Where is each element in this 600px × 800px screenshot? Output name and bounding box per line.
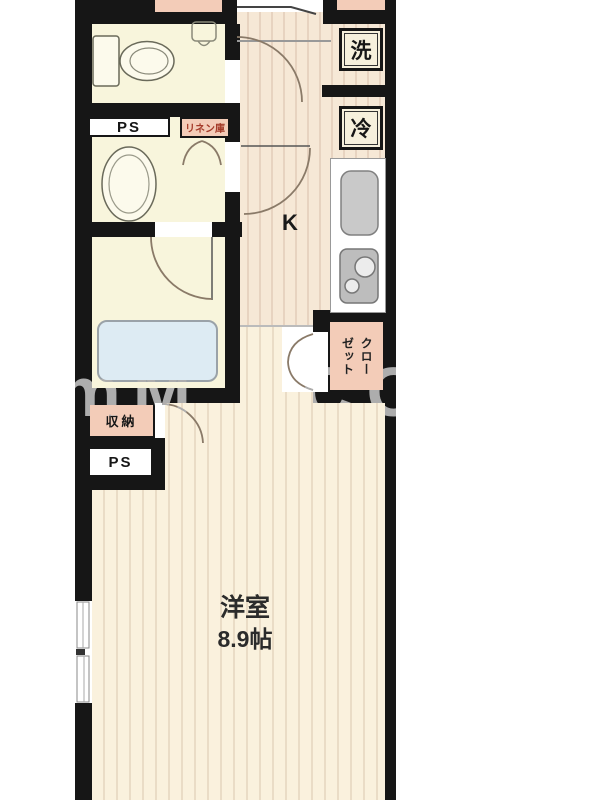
watermark-left: RmM bbox=[0, 352, 203, 432]
wash-basin-icon bbox=[102, 147, 156, 221]
stove-burner-small-icon bbox=[345, 279, 359, 293]
kitchen-label: K bbox=[272, 210, 308, 236]
stove-burner-large-icon bbox=[355, 257, 375, 277]
watermark-right: CO bbox=[302, 352, 435, 432]
window-center-latch-icon bbox=[76, 649, 85, 655]
entrance-door-icon bbox=[237, 7, 316, 14]
floorplan-image: PS リネン庫 洗 冷 クロー ゼット 収納 PS bbox=[0, 0, 600, 800]
room-size: 8.9帖 bbox=[140, 625, 350, 655]
toilet-door-arc bbox=[237, 37, 302, 102]
bathroom-door-arc bbox=[151, 237, 212, 299]
hand-basin-icon bbox=[192, 22, 216, 41]
linen-folding-door-arcs bbox=[183, 141, 221, 165]
stove-icon bbox=[340, 249, 378, 303]
hallway-door-arc bbox=[244, 148, 310, 214]
room-name: 洋室 bbox=[140, 592, 350, 625]
toilet-bowl-icon bbox=[120, 42, 174, 81]
kitchen-sink-icon bbox=[341, 171, 378, 235]
window-lower-sash-icon bbox=[77, 656, 89, 702]
room-label: 洋室 8.9帖 bbox=[140, 592, 350, 654]
toilet-tank-icon bbox=[93, 36, 119, 86]
